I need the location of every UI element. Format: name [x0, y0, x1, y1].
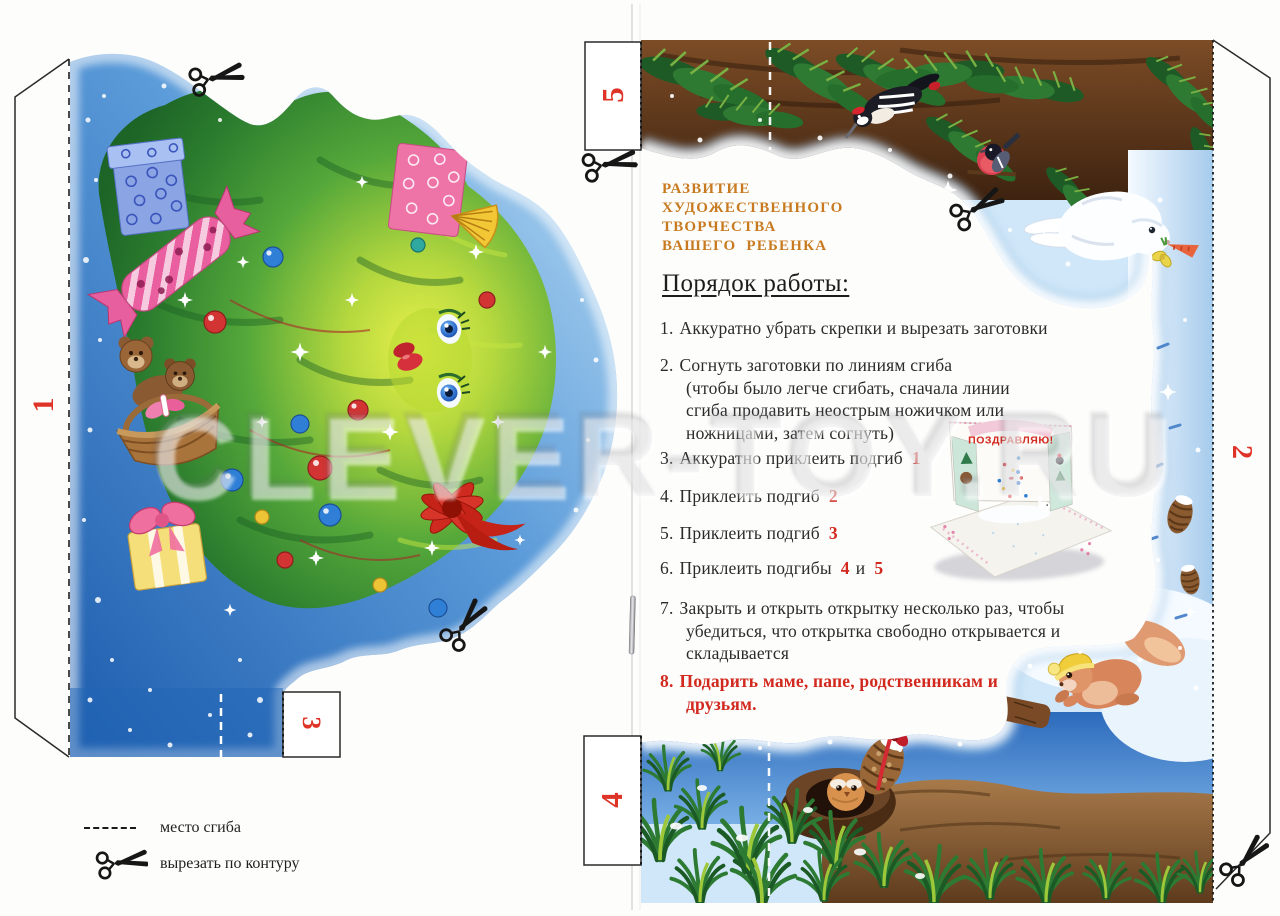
step-number: 5. — [660, 523, 674, 543]
scanned-craft-sheet: 1 3 5 4 2 РАЗВИТИЕ ХУДОЖЕСТВЕННОГО ТВОРЧ… — [0, 0, 1280, 916]
left-sheet-illustration — [15, 54, 617, 758]
scissors-icon — [1218, 831, 1273, 888]
step-3: 3.Аккуратно приклеить подгиб1 — [660, 447, 1168, 470]
legend-cut-label: вырезать по контуру — [160, 855, 300, 873]
step-number: 3. — [660, 448, 674, 468]
step-text: Аккуратно приклеить подгиб — [680, 448, 903, 468]
legend: место сгиба вырезать по контуру — [84, 810, 300, 882]
step-text: Приклеить подгиб — [680, 523, 820, 543]
step-8: 8.Подарить маме, папе, родственникам и д… — [660, 670, 1058, 715]
step-text: Согнуть заготовки по линиям сгиба — [680, 355, 953, 375]
tab-reference: 1 — [912, 448, 921, 468]
tab-reference: 4 — [841, 558, 850, 578]
header-line: РАЗВИТИЕ — [662, 180, 843, 199]
owl-icon — [827, 773, 865, 811]
legend-fold-label: место сгиба — [160, 819, 241, 837]
tab-4-number: 4 — [594, 783, 630, 817]
step-5: 5.Приклеить подгиб3 — [660, 522, 1168, 545]
gift-swirl-icon — [388, 143, 468, 237]
step-2: 2.Согнуть заготовки по линиям сгиба (что… — [660, 354, 1168, 444]
step-4: 4.Приклеить подгиб2 — [660, 485, 1168, 508]
step-number: 6. — [660, 558, 674, 578]
tab-1-number: 1 — [26, 388, 62, 422]
series-header: РАЗВИТИЕ ХУДОЖЕСТВЕННОГО ТВОРЧЕСТВА ВАШЕ… — [662, 180, 843, 256]
staple — [629, 596, 636, 654]
section-title: Порядок работы: — [662, 270, 849, 298]
step-number: 8. — [660, 671, 674, 691]
step-number: 1. — [660, 318, 674, 338]
step-text: Приклеить подгибы — [680, 558, 832, 578]
tab-reference: 5 — [874, 558, 883, 578]
tree-face — [388, 308, 472, 412]
tab-5-number: 5 — [595, 78, 631, 112]
fold-line-sample — [84, 827, 136, 829]
header-line: ВАШЕГО РЕБЕНКА — [662, 237, 843, 256]
step-text: Закрыть и открыть открытку несколько раз… — [680, 598, 1065, 663]
tab-2-number: 2 — [1223, 435, 1259, 469]
gift-polka-icon — [107, 138, 193, 237]
header-line: ТВОРЧЕСТВА — [662, 218, 843, 237]
header-line: ХУДОЖЕСТВЕННОГО — [662, 199, 843, 218]
step-text: Подарить маме, папе, родственникам и дру… — [680, 671, 999, 714]
tab-reference: 2 — [829, 486, 838, 506]
step-number: 7. — [660, 598, 674, 618]
tab-reference: 3 — [829, 523, 838, 543]
step-text: и — [856, 558, 866, 578]
legend-cut-row: вырезать по контуру — [84, 846, 300, 882]
tab-3-number: 3 — [293, 706, 329, 740]
step-note: (чтобы было легче сгибать, сначала линии… — [686, 377, 1040, 445]
step-number: 4. — [660, 486, 674, 506]
step-text: Приклеить подгиб — [680, 486, 820, 506]
step-7: 7.Закрыть и открыть открытку несколько р… — [660, 597, 1110, 665]
legend-fold-row: место сгиба — [84, 810, 300, 846]
step-1: 1.Аккуратно убрать скрепки и вырезать за… — [660, 317, 1168, 340]
scissors-icon — [84, 848, 148, 880]
step-number: 2. — [660, 355, 674, 375]
step-text: Аккуратно убрать скрепки и вырезать заго… — [680, 318, 1048, 338]
step-6: 6.Приклеить подгибы4и5 — [660, 557, 1168, 580]
